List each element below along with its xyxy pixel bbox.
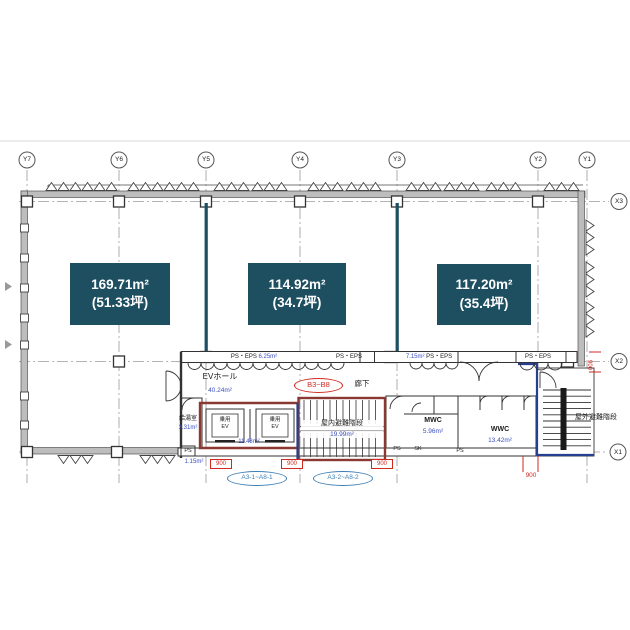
dim-900-1: 900 (210, 459, 232, 469)
outdoor-stair (537, 368, 594, 456)
room-kitchen: 給湯室 (172, 416, 204, 423)
dim-900-4: 900 (585, 355, 592, 375)
shaft-ps-eps-right: PS・EPS (517, 354, 559, 361)
tag-a-range-2: A3-2~A8-2 (313, 471, 373, 486)
shaft-ps-eps-mid2: 7.15m² PS・EPS (396, 354, 462, 361)
room-ev-hall: EVホール (185, 373, 255, 382)
label-ps-area: 1.15m² (178, 459, 210, 466)
grid-label-y4: Y4 (290, 156, 310, 163)
dim-900-3: 900 (371, 459, 393, 469)
grid-label-y7: Y7 (17, 156, 37, 163)
tag-a-range-1: A3-1~A8-1 (227, 471, 287, 486)
unit-area-box-1: 169.71m² (51.33坪) (70, 263, 170, 325)
unit-1-tsubo: (51.33坪) (92, 294, 148, 312)
room-mwc-area: 5.96m² (407, 428, 459, 435)
label-ps-1: PS (180, 448, 196, 454)
left-arrow-icon (5, 282, 12, 291)
grid-label-x1: X1 (608, 449, 628, 456)
label-ps-3: PS (452, 448, 468, 454)
left-arrow-icon (5, 340, 12, 349)
room-elevator-1: 乗用 EV (207, 417, 243, 431)
room-corridor: 廊下 (348, 380, 376, 388)
room-indoor-stair-area: 19.99m² (301, 431, 383, 438)
room-outdoor-stair: 屋外避難階段 (575, 414, 630, 422)
grid-label-y5: Y5 (196, 156, 216, 163)
room-kitchen-area: 3.31m² (172, 425, 204, 432)
grid-label-x2: X2 (609, 358, 629, 365)
grid-label-y2: Y2 (528, 156, 548, 163)
room-ev-hall-area: 40.24m² (185, 387, 255, 394)
unit-2-tsubo: (34.7坪) (273, 294, 322, 312)
room-mwc: MWC (407, 417, 459, 425)
grid-label-y1: Y1 (577, 156, 597, 163)
dim-900-5: 900 (519, 472, 543, 479)
floor-plan: Y7 Y6 Y5 Y4 Y3 Y2 Y1 X3 X2 X1 169.71m² (… (0, 0, 630, 630)
label-ps-2: PS (389, 446, 405, 452)
elevators-area: 11.48m² (213, 439, 285, 446)
unit-area-box-3: 117.20m² (35.4坪) (437, 264, 531, 325)
grid-label-x3: X3 (609, 198, 629, 205)
shaft-ps-eps-left: PS・EPS 6.25m² (215, 354, 293, 361)
room-indoor-stair: 屋内避難階段 (301, 420, 383, 428)
tag-b-range: B3~B8 (294, 378, 343, 393)
unit-1-area: 169.71m² (91, 276, 149, 294)
dim-900-2: 900 (281, 459, 303, 469)
unit-area-box-2: 114.92m² (34.7坪) (248, 263, 346, 325)
unit-2-area: 114.92m² (268, 276, 325, 294)
grid-label-y3: Y3 (387, 156, 407, 163)
grid-label-y6: Y6 (109, 156, 129, 163)
label-sk: SK (410, 446, 426, 452)
unit-3-area: 117.20m² (455, 276, 512, 294)
shaft-ps-eps-mid: PS・EPS (331, 354, 367, 361)
room-wwc-area: 13.42m² (474, 437, 526, 444)
unit-3-tsubo: (35.4坪) (460, 295, 509, 313)
room-elevator-2: 乗用 EV (257, 417, 293, 431)
room-wwc: WWC (474, 426, 526, 434)
